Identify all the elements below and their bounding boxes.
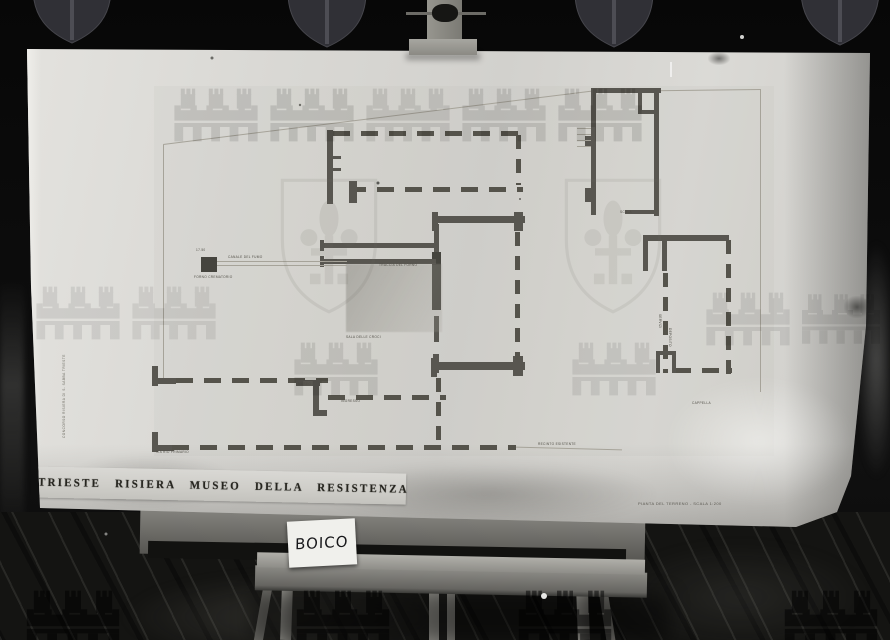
plan-stair-line — [577, 128, 591, 129]
plan-wall — [593, 88, 661, 93]
plan-wall-dashed — [172, 445, 516, 450]
plan-wall — [313, 386, 319, 412]
plan-wall-dashed — [674, 368, 732, 373]
plan-wall — [322, 243, 436, 248]
plan-wall — [643, 235, 729, 241]
archive-card-label: BOICO — [295, 533, 349, 554]
plan-title: TRIESTE RISIERA MUSEO DELLA RESISTENZA — [28, 476, 409, 496]
plan-label: 17.50 — [196, 248, 205, 252]
board-bright-patch — [664, 376, 854, 506]
plan-wall-dashed — [333, 131, 523, 136]
plan-label: VIA RIO PRIMARIO — [156, 450, 189, 454]
plan-wall — [333, 168, 341, 171]
plan-wall-dashed — [516, 135, 521, 185]
plan-stair-line — [577, 140, 591, 141]
plan-wall — [672, 351, 676, 373]
plan-boundary-right — [760, 89, 761, 392]
plan-label: CAPPELLA — [692, 401, 711, 405]
plan-wall — [585, 188, 591, 202]
plan-label-vertical: DEPOSITO — [668, 328, 672, 347]
wall-scuff-left — [0, 280, 24, 540]
plan-wall — [320, 240, 324, 251]
plan-wall-dashed — [436, 378, 441, 444]
plan-label: TRACCIA DEL FORNO — [379, 263, 417, 267]
plan-wall-dashed — [726, 240, 731, 374]
plan-stair-line — [577, 146, 591, 147]
plan-smoke-channel — [217, 261, 347, 262]
plan-wall — [349, 181, 357, 203]
plan-wall — [585, 136, 591, 146]
board-stain-top-right — [708, 52, 730, 65]
plan-wall — [152, 378, 176, 384]
plan-wall — [643, 235, 648, 271]
plan-caption: PIANTA DEL TERRENO - SCALA 1:200 — [638, 501, 722, 506]
plan-wall — [435, 362, 525, 370]
archival-photo: 17.50 CANALE DEL FUMO FORNO CREMATORIO T… — [0, 0, 890, 640]
easel-shadow — [250, 594, 670, 640]
plan-label: CANALE DEL FUMO — [228, 255, 263, 259]
plan-label: SALA DELLE CROCI — [346, 335, 381, 339]
clamp-knob — [432, 4, 458, 22]
drawing-board: 17.50 CANALE DEL FUMO FORNO CREMATORIO T… — [24, 46, 872, 528]
plan-wall — [333, 156, 341, 159]
plan-chimney-block — [201, 257, 217, 272]
plan-wall — [435, 216, 525, 223]
plan-wall — [313, 410, 327, 416]
plan-label: SCALA — [620, 210, 632, 214]
plan-boundary-left — [163, 145, 164, 379]
plan-label: MUSEO — [298, 382, 311, 386]
plan-smoke-channel — [217, 265, 347, 266]
plan-label-vertical: SERVIZI — [658, 314, 662, 328]
plan-wall-dashed — [663, 273, 668, 373]
plan-wall — [591, 88, 596, 215]
plan-wall — [662, 235, 667, 271]
plan-wall — [514, 212, 523, 231]
plan-wall-dashed — [515, 232, 520, 360]
plan-label: RECINTO ESISTENTE — [538, 442, 576, 446]
board-stain-right-edge — [844, 296, 870, 318]
archive-card: BOICO — [287, 518, 357, 567]
plan-wall — [654, 88, 659, 216]
plan-wall — [327, 130, 333, 204]
clamp-block — [409, 39, 477, 55]
plan-wall — [638, 110, 658, 114]
plan-stair-line — [577, 134, 591, 135]
plan-wall-dashed — [349, 187, 523, 192]
plan-label: FORNO CREMATORIO — [194, 275, 233, 279]
plan-shaded-area — [346, 264, 442, 332]
plan-wall — [431, 358, 437, 377]
margin-annotation: CONCORSO RISIERA DI S. SABBA TRIESTE — [62, 354, 66, 438]
plan-label: INGRESSO — [341, 399, 360, 403]
